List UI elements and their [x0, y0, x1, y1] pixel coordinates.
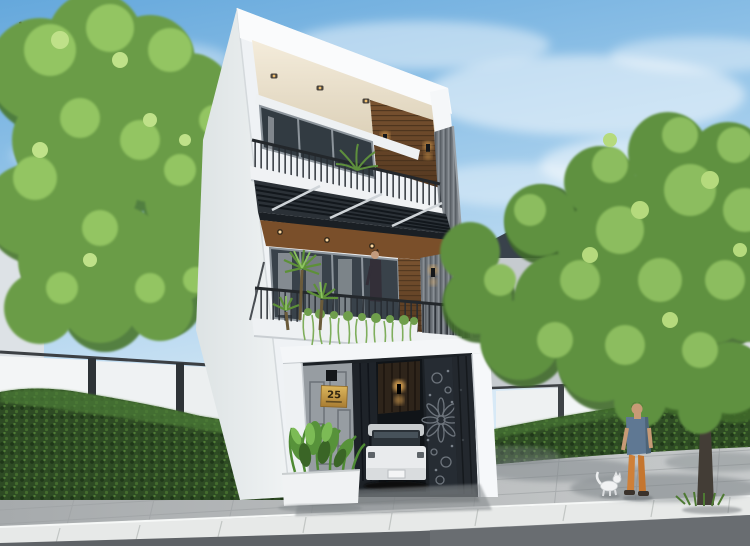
man-arm	[649, 428, 651, 448]
house-number: 25	[327, 390, 341, 401]
man-head	[632, 404, 643, 415]
plaque-lamp	[326, 370, 337, 381]
man-shoe	[638, 491, 649, 496]
planter-box	[282, 470, 360, 506]
render-scene: 25	[0, 0, 750, 546]
house-number-plaque: 25	[321, 386, 348, 408]
man-shoe	[624, 490, 635, 495]
